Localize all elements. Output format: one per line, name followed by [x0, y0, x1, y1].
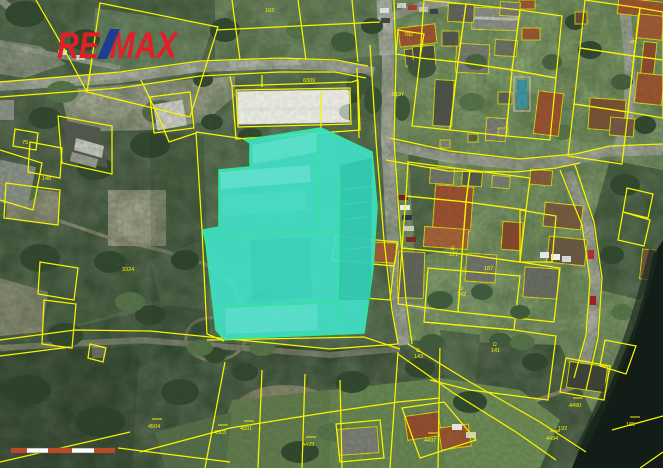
svg-text:121: 121	[449, 252, 458, 258]
svg-text:4490: 4490	[569, 403, 581, 409]
svg-text:782: 782	[404, 32, 413, 38]
svg-text:Ω: Ω	[416, 348, 420, 354]
svg-text:185: 185	[626, 422, 635, 428]
svg-text:4494: 4494	[546, 436, 558, 442]
svg-text:6197: 6197	[392, 92, 404, 98]
svg-text:3324: 3324	[122, 267, 134, 273]
svg-text:4504: 4504	[148, 424, 160, 430]
svg-text:143: 143	[414, 354, 423, 360]
svg-text:4497: 4497	[424, 438, 436, 444]
svg-text:4503: 4503	[214, 430, 226, 436]
svg-text:10: 10	[40, 459, 47, 465]
svg-text:Ω: Ω	[493, 342, 497, 348]
svg-text:142: 142	[457, 292, 466, 298]
svg-text:187: 187	[484, 266, 493, 272]
svg-text:162: 162	[265, 8, 274, 14]
svg-text:1.0: 1.0	[86, 459, 95, 465]
svg-text:Ω: Ω	[451, 246, 455, 252]
svg-text:148: 148	[42, 176, 51, 182]
svg-text:75: 75	[22, 140, 28, 146]
svg-text:8309: 8309	[303, 78, 315, 84]
svg-text:45: 45	[630, 40, 636, 46]
svg-text:MAX: MAX	[109, 25, 179, 67]
svg-text:4499: 4499	[302, 442, 314, 448]
svg-text:141: 141	[491, 348, 500, 354]
svg-text:Ω: Ω	[459, 286, 463, 292]
svg-text:4501: 4501	[240, 426, 252, 432]
svg-text:RE: RE	[57, 25, 100, 67]
